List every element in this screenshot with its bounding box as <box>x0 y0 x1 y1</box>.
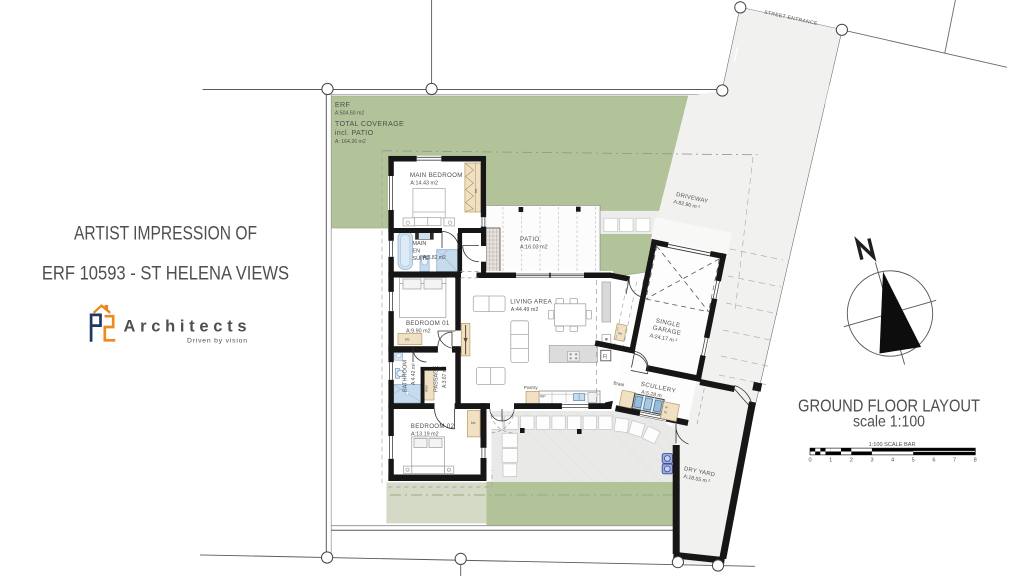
svg-text:A:16.03 m2: A:16.03 m2 <box>520 245 548 251</box>
svg-text:bic: bic <box>474 188 478 193</box>
svg-text:A: 164.26 m2: A: 164.26 m2 <box>335 139 366 145</box>
svg-text:2: 2 <box>850 458 853 464</box>
svg-text:3: 3 <box>870 458 873 464</box>
svg-text:MAIN BEDROOM: MAIN BEDROOM <box>410 172 463 179</box>
svg-text:MAIN: MAIN <box>412 241 426 247</box>
svg-text:4: 4 <box>891 458 894 464</box>
svg-text:1: 1 <box>829 458 832 464</box>
svg-text:linen: linen <box>425 385 429 392</box>
svg-text:A:13.19 m2: A:13.19 m2 <box>411 432 439 438</box>
svg-text:EN: EN <box>412 249 420 255</box>
svg-text:WP: WP <box>540 395 546 399</box>
svg-text:GROUND FLOOR LAYOUT: GROUND FLOOR LAYOUT <box>798 396 980 416</box>
svg-text:PATIO: PATIO <box>520 236 540 243</box>
svg-text:A:504.60 m2: A:504.60 m2 <box>335 111 365 117</box>
svg-text:0: 0 <box>808 458 811 464</box>
svg-text:ARTIST IMPRESSION OF: ARTIST IMPRESSION OF <box>74 224 257 245</box>
svg-text:1:100 SCALE BAR: 1:100 SCALE BAR <box>869 442 916 448</box>
svg-text:5: 5 <box>912 458 915 464</box>
svg-text:7: 7 <box>953 458 956 464</box>
svg-text:ERF: ERF <box>335 100 351 109</box>
svg-text:BEDROOM 01: BEDROOM 01 <box>406 320 450 327</box>
svg-text:ERF 10593 - ST HELENA VIEWS: ERF 10593 - ST HELENA VIEWS <box>42 264 289 285</box>
svg-text:LIVING AREA: LIVING AREA <box>510 298 552 305</box>
svg-text:scale 1:100: scale 1:100 <box>853 414 925 431</box>
svg-text:Driven by vision: Driven by vision <box>187 338 247 345</box>
svg-text:A:14.43 m2: A:14.43 m2 <box>410 181 438 187</box>
svg-text:8: 8 <box>974 458 977 464</box>
svg-text:A:4.42 m²: A:4.42 m² <box>411 363 417 385</box>
svg-text:incl. PATIO: incl. PATIO <box>335 128 374 137</box>
svg-text:BATHROOM: BATHROOM <box>403 360 409 392</box>
svg-text:F|: F| <box>603 354 607 360</box>
svg-text:A:5.82 m2: A:5.82 m2 <box>423 255 446 261</box>
svg-text:A:44.49 m2: A:44.49 m2 <box>511 307 539 313</box>
svg-text:6: 6 <box>932 458 935 464</box>
svg-text:Pantry: Pantry <box>524 385 538 391</box>
svg-text:TOTAL COVERAGE: TOTAL COVERAGE <box>335 119 404 128</box>
svg-text:bic: bic <box>471 421 476 425</box>
svg-text:bic: bic <box>405 338 410 342</box>
svg-text:BEDROOM 02: BEDROOM 02 <box>411 423 455 430</box>
